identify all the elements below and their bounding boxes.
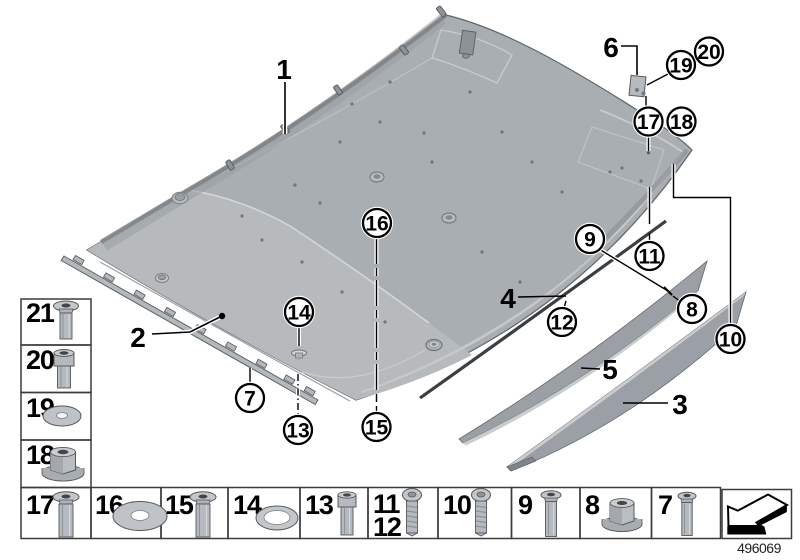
svg-text:11: 11	[638, 246, 661, 269]
svg-text:13: 13	[305, 490, 334, 520]
svg-text:1: 1	[276, 54, 292, 85]
svg-text:20: 20	[26, 345, 54, 375]
svg-text:12: 12	[373, 512, 401, 542]
svg-text:6: 6	[603, 32, 619, 63]
svg-text:5: 5	[602, 354, 618, 385]
svg-text:18: 18	[670, 111, 694, 134]
svg-text:8: 8	[585, 490, 600, 520]
svg-text:17: 17	[637, 111, 660, 134]
svg-text:7: 7	[244, 388, 256, 411]
svg-text:21: 21	[26, 298, 55, 328]
svg-text:15: 15	[165, 490, 194, 520]
svg-text:496069: 496069	[737, 540, 781, 556]
svg-text:10: 10	[443, 490, 471, 520]
svg-text:4: 4	[500, 283, 516, 314]
svg-text:2: 2	[130, 322, 146, 353]
svg-text:19: 19	[669, 55, 692, 78]
svg-text:20: 20	[697, 41, 720, 64]
svg-text:15: 15	[365, 417, 389, 440]
svg-text:8: 8	[686, 299, 698, 322]
svg-text:7: 7	[658, 490, 672, 520]
svg-text:14: 14	[287, 302, 311, 325]
svg-text:3: 3	[672, 389, 688, 420]
svg-text:16: 16	[365, 213, 388, 236]
svg-text:10: 10	[719, 329, 742, 352]
svg-text:17: 17	[26, 490, 54, 520]
svg-text:13: 13	[286, 420, 309, 443]
svg-text:9: 9	[584, 229, 596, 252]
svg-text:12: 12	[550, 312, 573, 335]
svg-text:9: 9	[518, 490, 533, 520]
